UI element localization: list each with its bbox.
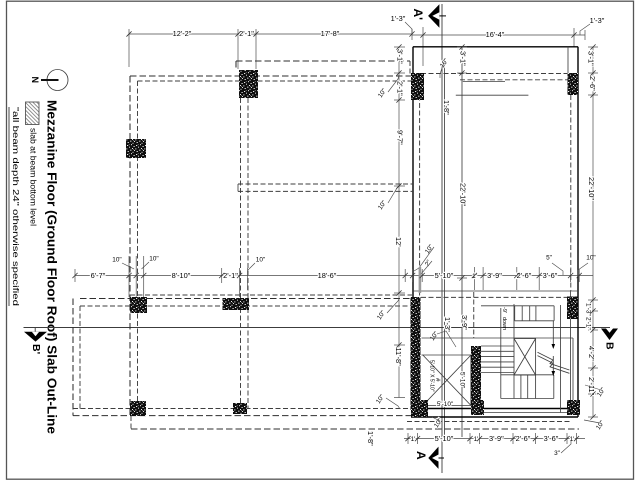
svg-text:5'-10": 5'-10" [435, 434, 454, 443]
svg-text:3": 3" [554, 450, 560, 457]
svg-text:3'-1": 3'-1" [459, 51, 468, 66]
svg-text:1'-8": 1'-8" [366, 431, 375, 446]
svg-text:10": 10" [256, 257, 265, 264]
svg-text:2'-6": 2'-6" [517, 271, 532, 280]
svg-text:1': 1' [570, 436, 575, 443]
svg-text:A': A' [411, 9, 425, 21]
svg-text:3'-1": 3'-1" [586, 51, 595, 66]
svg-text:16'-4": 16'-4" [486, 30, 505, 39]
svg-text:2'-1": 2'-1" [396, 81, 405, 96]
svg-text:down: down [501, 317, 507, 330]
svg-text:12': 12' [394, 237, 403, 247]
svg-text:2'-1": 2'-1" [239, 29, 254, 38]
svg-text:1'-8": 1'-8" [442, 100, 451, 115]
svg-text:3'-9": 3'-9" [487, 271, 502, 280]
svg-text:3'-9": 3'-9" [460, 315, 469, 330]
svg-text:-9': -9' [501, 307, 507, 313]
svg-text:5": 5" [546, 255, 552, 262]
svg-text:B: B [604, 342, 616, 350]
svg-text:22'-10": 22'-10" [587, 177, 596, 200]
svg-text:22'-10": 22'-10" [459, 183, 468, 206]
svg-text:2'-6": 2'-6" [516, 434, 531, 443]
svg-text:Mezzanine Floor (Ground Floor: Mezzanine Floor (Ground Floor Roof) Slab… [45, 100, 60, 434]
svg-text:5'-10" X 5'-10": 5'-10" X 5'-10" [429, 360, 435, 392]
svg-text:10": 10" [149, 256, 158, 263]
svg-text:2'-1": 2'-1" [223, 271, 238, 280]
svg-text:5'-10": 5'-10" [435, 271, 454, 280]
svg-text:3'-6": 3'-6" [543, 271, 558, 280]
svg-text:3'-1": 3'-1" [396, 49, 405, 64]
svg-text:18'-6": 18'-6" [318, 271, 337, 280]
svg-text:8'-10": 8'-10" [172, 271, 191, 280]
svg-text:slab at beam bottom level: slab at beam bottom level [29, 128, 38, 226]
svg-text:11'-8": 11'-8" [394, 348, 403, 367]
svg-text:1': 1' [474, 436, 479, 443]
svg-text:"all beam depth 24" otherwise: "all beam depth 24" otherwise specified [11, 107, 21, 306]
svg-text:1': 1' [411, 436, 416, 443]
svg-text:6'-7": 6'-7" [91, 271, 106, 280]
svg-text:B': B' [30, 344, 42, 354]
svg-text:3'-9": 3'-9" [489, 434, 504, 443]
svg-text:5'-10": 5'-10" [437, 401, 453, 408]
svg-text:1'-3": 1'-3" [443, 317, 452, 332]
svg-text:4'-2": 4'-2" [587, 346, 596, 361]
svg-text:2'-1": 2'-1" [585, 317, 592, 330]
svg-text:17'-8": 17'-8" [321, 29, 340, 38]
svg-text:10": 10" [112, 257, 121, 264]
svg-text:A: A [414, 451, 428, 460]
svg-text:3'-6": 3'-6" [544, 434, 559, 443]
svg-text:2'-6": 2'-6" [588, 76, 597, 91]
svg-text:N: N [30, 77, 40, 84]
svg-text:1'-3": 1'-3" [391, 14, 406, 23]
svg-text:1'-3": 1'-3" [590, 16, 605, 25]
svg-text:10": 10" [586, 255, 595, 262]
svg-text:5'-10": 5'-10" [459, 372, 466, 388]
svg-text:12'-2": 12'-2" [173, 29, 192, 38]
svg-text:1'-3": 1'-3" [585, 303, 592, 316]
svg-text:9'-7": 9'-7" [396, 130, 405, 145]
